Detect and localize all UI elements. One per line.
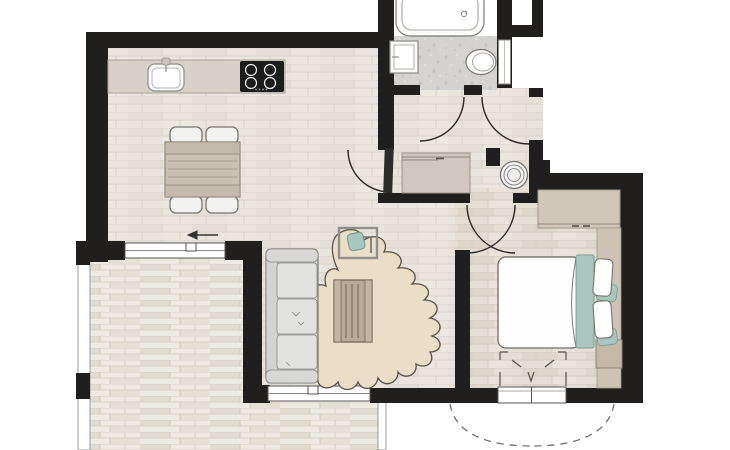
- wall-bath-south-left: [378, 85, 420, 95]
- bedroom-french-door: [498, 387, 566, 403]
- wall-bedroom-south-right: [566, 388, 643, 403]
- wall-bedroom-east: [620, 173, 643, 403]
- floor-plan-svg: [0, 0, 730, 450]
- wall-west: [86, 32, 108, 262]
- bath-window: [499, 40, 511, 84]
- teal-seat: [347, 232, 366, 252]
- railing-glass-bottom-right: [378, 402, 386, 450]
- wall-nook-stub: [486, 148, 500, 166]
- sofa-armrest-top: [266, 249, 318, 262]
- wall-hall-south: [378, 193, 470, 203]
- wall-partition-living-bedroom: [455, 250, 470, 390]
- wall-south-mid: [370, 388, 500, 403]
- window-handle: [308, 386, 318, 394]
- wall-dining-south-left: [104, 241, 125, 260]
- wardrobe: [538, 190, 620, 228]
- wall-balcony-east: [243, 243, 262, 391]
- wall-north-kitchen: [86, 32, 380, 48]
- window-handle: [186, 243, 196, 251]
- railing-post-mid: [76, 373, 90, 399]
- sofa-armrest-bottom: [266, 370, 318, 383]
- wall-bath-south-right: [464, 85, 482, 95]
- sink-tap: [162, 58, 170, 65]
- dining-window: [125, 243, 225, 258]
- wall-hall-west: [378, 0, 394, 150]
- teal-runner: [576, 255, 594, 348]
- wall-niche-east: [532, 0, 543, 27]
- wash-basin: [390, 41, 418, 73]
- french-swing-right: [533, 404, 614, 446]
- sofa: [266, 249, 318, 383]
- living-door-leaf: [383, 148, 394, 193]
- washing-machine: [501, 162, 528, 189]
- sofa-backrest: [266, 249, 278, 383]
- sliding-door-closet: [402, 153, 470, 193]
- wall-entrance-jamb: [529, 88, 543, 97]
- living-window: [268, 386, 370, 401]
- floor-plan-canvas: [0, 0, 730, 450]
- cooktop: [240, 61, 284, 92]
- double-bed: [498, 255, 618, 348]
- wall-dining-south-right: [225, 241, 262, 260]
- coffee-table: [334, 280, 372, 342]
- french-swing-left: [450, 404, 531, 446]
- kitchen: [108, 58, 285, 93]
- dining-table: [165, 142, 240, 197]
- bathtub: [396, 0, 484, 36]
- toilet: [466, 50, 496, 75]
- pillow-1: [593, 258, 614, 296]
- pillow-2: [593, 300, 614, 338]
- railing-glass-left: [78, 258, 90, 450]
- wall-bedroom-north: [538, 173, 620, 190]
- duvet: [498, 257, 580, 348]
